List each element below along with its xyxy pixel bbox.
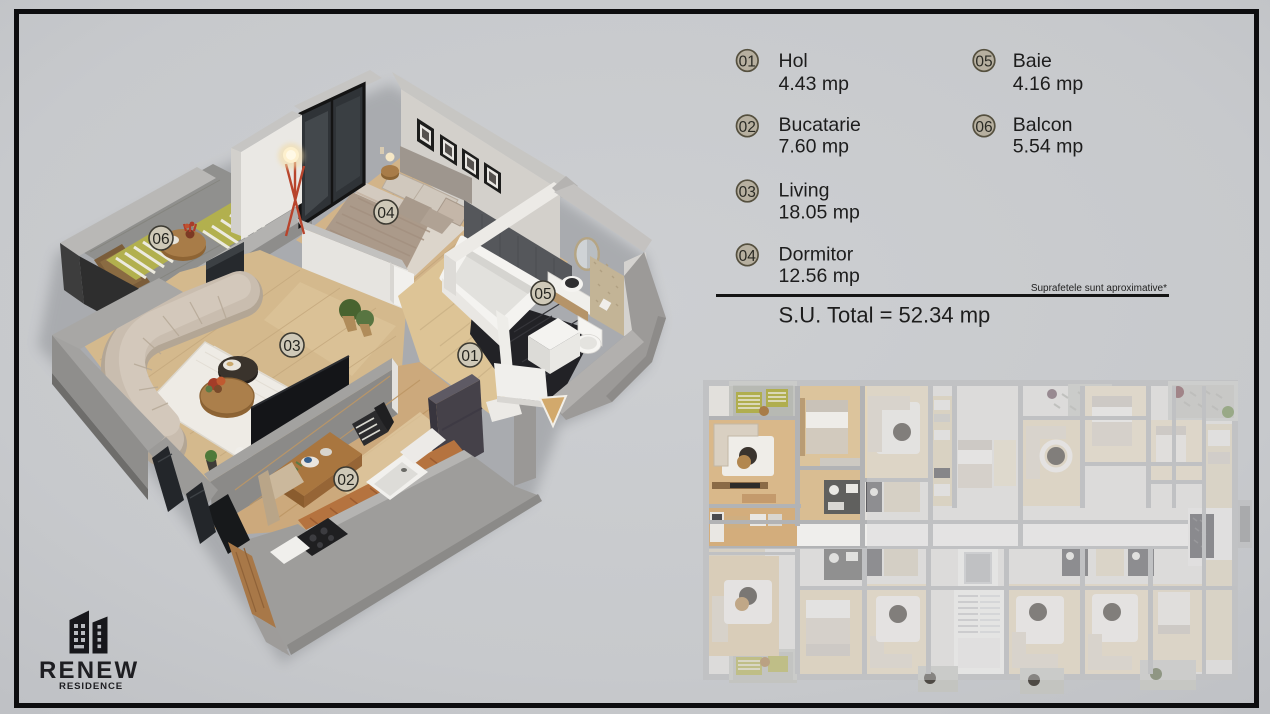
svg-text:06: 06 <box>975 119 992 136</box>
svg-text:Bucatarie: Bucatarie <box>779 114 861 136</box>
svg-text:02: 02 <box>739 119 756 136</box>
svg-text:01: 01 <box>461 348 478 365</box>
svg-text:RESIDENCE: RESIDENCE <box>59 681 123 692</box>
svg-text:06: 06 <box>152 231 169 248</box>
svg-text:RENEW: RENEW <box>39 657 139 684</box>
svg-text:04: 04 <box>739 248 757 265</box>
svg-text:Baie: Baie <box>1013 50 1052 72</box>
svg-text:02: 02 <box>337 472 354 489</box>
svg-text:03: 03 <box>739 184 756 201</box>
svg-text:4.43 mp: 4.43 mp <box>779 73 850 95</box>
svg-text:18.05 mp: 18.05 mp <box>779 201 860 223</box>
svg-text:4.16 mp: 4.16 mp <box>1013 73 1084 95</box>
svg-text:Living: Living <box>779 180 830 202</box>
svg-text:12.56 mp: 12.56 mp <box>779 265 860 287</box>
svg-text:01: 01 <box>739 54 756 71</box>
svg-text:03: 03 <box>283 338 300 355</box>
svg-text:Dormitor: Dormitor <box>779 244 854 266</box>
svg-text:5.54 mp: 5.54 mp <box>1013 136 1084 158</box>
svg-text:Suprafetele sunt aproximative*: Suprafetele sunt aproximative* <box>1031 283 1167 294</box>
svg-text:05: 05 <box>534 286 551 303</box>
svg-text:04: 04 <box>377 205 395 222</box>
svg-text:7.60 mp: 7.60 mp <box>779 136 850 158</box>
svg-text:S.U. Total = 52.34 mp: S.U. Total = 52.34 mp <box>779 303 991 328</box>
svg-text:Hol: Hol <box>779 50 808 72</box>
svg-text:05: 05 <box>975 54 992 71</box>
svg-text:Balcon: Balcon <box>1013 114 1073 136</box>
